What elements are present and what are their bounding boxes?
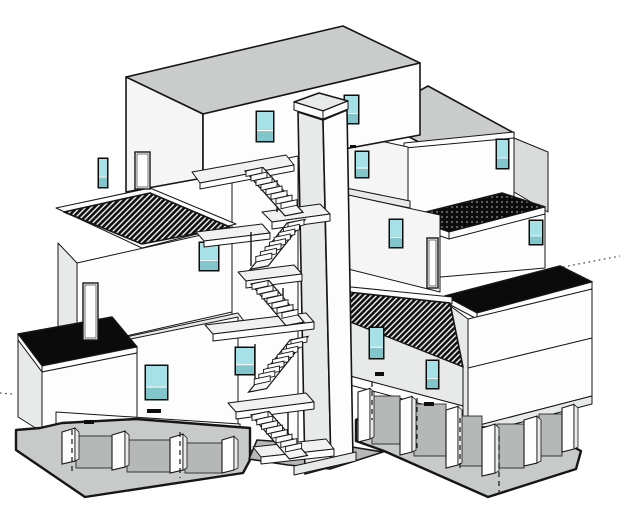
window-mullion <box>497 157 508 158</box>
pilotis-column <box>170 434 183 473</box>
window-glass <box>236 348 254 364</box>
building-axonometric-drawing <box>0 0 620 512</box>
pilotis-column <box>446 406 458 468</box>
window-glass-lower <box>99 176 107 187</box>
window-glass-lower <box>370 347 383 358</box>
window-glass <box>530 221 542 235</box>
vent-grille <box>424 402 434 406</box>
door-opening <box>427 238 438 288</box>
vent-grille <box>375 372 384 376</box>
pilotis-bay <box>414 404 446 456</box>
pilotis-column <box>482 424 495 476</box>
pilotis-column-side <box>574 404 578 449</box>
elevator-tower <box>294 93 356 475</box>
pilotis-bay <box>460 416 482 466</box>
window-glass-lower <box>427 378 438 388</box>
pilotis-column-side <box>412 396 416 452</box>
window-mullion <box>99 176 107 177</box>
window-mullion <box>146 386 167 387</box>
window-glass-lower <box>257 130 273 141</box>
window-glass <box>257 112 273 130</box>
pilotis-bay <box>76 436 112 468</box>
vent-grille <box>350 145 356 148</box>
pilotis-bay <box>497 424 524 468</box>
window-mullion <box>356 168 368 169</box>
window-glass <box>427 361 438 378</box>
pilotis-column-side <box>125 431 129 467</box>
pilotis-column <box>358 388 370 442</box>
window-glass-lower <box>497 157 508 168</box>
window-mullion <box>200 260 218 261</box>
window-mullion <box>257 130 273 131</box>
window-mullion <box>236 364 254 365</box>
window-glass <box>356 152 368 168</box>
window-glass-lower <box>530 235 542 244</box>
pilotis-column-side <box>537 416 541 463</box>
pilotis-column <box>524 416 537 466</box>
architectural-drawing-canvas <box>0 0 620 512</box>
window-mullion <box>370 347 383 348</box>
window-glass-lower <box>356 168 368 178</box>
window-glass-lower <box>200 260 218 270</box>
pilotis-column <box>562 404 574 452</box>
window-mullion <box>530 235 542 236</box>
pilotis-column <box>400 396 412 455</box>
vent-grille <box>84 420 94 424</box>
pilotis-bay <box>127 440 170 472</box>
pilotis-column-side <box>183 434 187 470</box>
window-glass <box>146 366 167 386</box>
window-mullion <box>390 237 402 238</box>
pilotis-column <box>62 428 75 464</box>
window-mullion <box>427 378 438 379</box>
pilotis-column-side <box>234 436 238 470</box>
pilotis-bay <box>372 396 400 444</box>
vent-grille <box>147 409 161 413</box>
pilotis-column <box>222 436 234 473</box>
window-glass <box>370 328 383 347</box>
window-glass-lower <box>390 237 402 247</box>
window-glass-lower <box>236 364 254 374</box>
pilotis-bay <box>539 414 562 456</box>
pilotis-column-side <box>75 428 79 461</box>
window-glass <box>390 220 402 237</box>
window-glass <box>497 140 508 157</box>
leader-line <box>563 256 620 267</box>
window-glass <box>99 159 107 176</box>
pilotis-bay <box>185 443 222 473</box>
window-glass-lower <box>146 386 167 399</box>
pilotis-column <box>112 431 125 470</box>
leader-line <box>0 393 12 394</box>
